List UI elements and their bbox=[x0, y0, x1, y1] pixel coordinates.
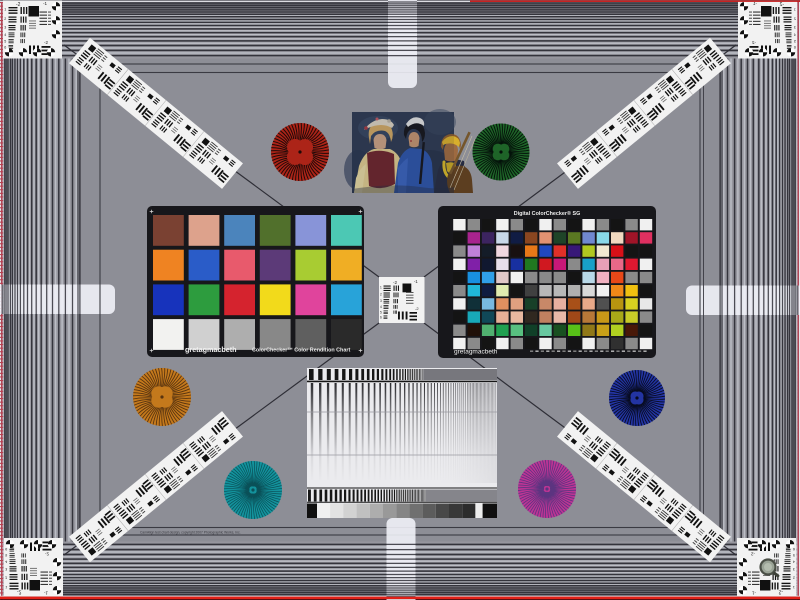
svg-text:1: 1 bbox=[793, 585, 795, 589]
svg-text:6: 6 bbox=[794, 45, 796, 49]
svg-text:2: 2 bbox=[794, 17, 796, 21]
svg-text:4: 4 bbox=[5, 560, 7, 564]
svg-text:-1: -1 bbox=[752, 591, 756, 596]
svg-text:5: 5 bbox=[5, 553, 7, 557]
svg-text:5: 5 bbox=[380, 311, 382, 315]
svg-text:4: 4 bbox=[794, 33, 796, 37]
svg-text:2: 2 bbox=[4, 17, 6, 21]
svg-text:5: 5 bbox=[793, 553, 795, 557]
svg-text:CamAlign test chart design, co: CamAlign test chart design, copyright 20… bbox=[140, 531, 241, 535]
svg-text:2: 2 bbox=[793, 576, 795, 580]
svg-text:5: 5 bbox=[4, 39, 6, 43]
svg-text:-1: -1 bbox=[43, 1, 47, 6]
svg-text:1: 1 bbox=[380, 286, 382, 290]
svg-text:3: 3 bbox=[5, 567, 7, 571]
svg-text:-2: -2 bbox=[393, 280, 398, 285]
svg-text:-2: -2 bbox=[44, 40, 48, 45]
svg-text:6: 6 bbox=[793, 547, 795, 551]
svg-text:1: 1 bbox=[4, 7, 6, 11]
svg-text:3: 3 bbox=[380, 299, 382, 303]
svg-text:6: 6 bbox=[380, 316, 382, 320]
svg-text:gretagmacbeth: gretagmacbeth bbox=[185, 345, 237, 354]
svg-text:6: 6 bbox=[4, 45, 6, 49]
svg-text:Digital ColorChecker® SG: Digital ColorChecker® SG bbox=[514, 210, 581, 217]
svg-text:4: 4 bbox=[380, 305, 382, 309]
svg-text:4: 4 bbox=[4, 33, 6, 37]
svg-text:1: 1 bbox=[794, 7, 796, 11]
svg-text:-2: -2 bbox=[751, 552, 755, 557]
svg-text:3: 3 bbox=[794, 25, 796, 29]
svg-text:-2: -2 bbox=[45, 552, 49, 557]
svg-text:-1: -1 bbox=[44, 591, 48, 596]
svg-text:1: 1 bbox=[5, 585, 7, 589]
svg-text:gretagmacbeth: gretagmacbeth bbox=[454, 349, 498, 356]
svg-text:6: 6 bbox=[5, 547, 7, 551]
svg-text:2: 2 bbox=[5, 576, 7, 580]
svg-text:2: 2 bbox=[380, 293, 382, 297]
svg-text:3: 3 bbox=[4, 25, 6, 29]
svg-text:ColorChecker™ Color Rendition: ColorChecker™ Color Rendition Chart bbox=[252, 348, 350, 354]
svg-text:5: 5 bbox=[794, 39, 796, 43]
svg-text:4: 4 bbox=[793, 560, 795, 564]
svg-text:-2: -2 bbox=[752, 40, 756, 45]
svg-text:3: 3 bbox=[793, 567, 795, 571]
